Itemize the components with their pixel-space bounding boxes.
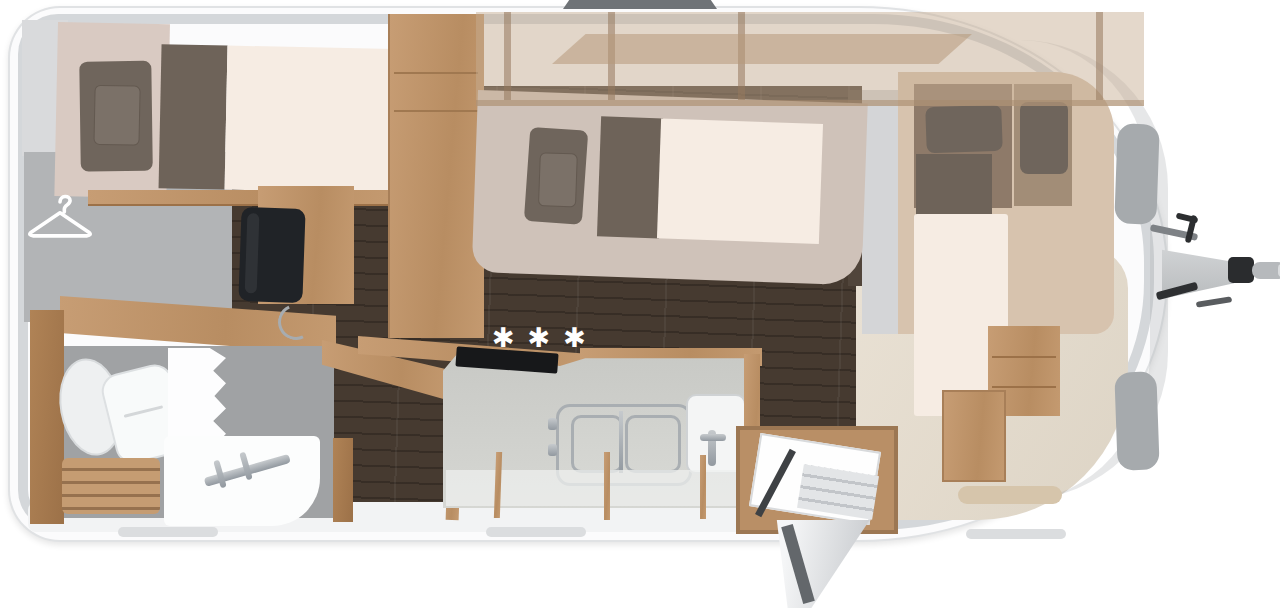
tall-cabinet-unit bbox=[388, 14, 484, 338]
kitchen-divider-d bbox=[700, 455, 706, 519]
rear-single-bed bbox=[54, 22, 394, 209]
tow-hitch bbox=[1150, 215, 1280, 315]
tv bbox=[238, 207, 305, 303]
entrance-door-leaf bbox=[766, 520, 874, 608]
washbasin-tap bbox=[205, 450, 305, 510]
hob-grate-tab1 bbox=[548, 418, 557, 430]
door-leaf-stripe bbox=[781, 524, 815, 604]
tv-highlight bbox=[245, 213, 260, 293]
kitchen-divider-c bbox=[604, 452, 610, 520]
front-bed-pillow1 bbox=[925, 105, 1003, 154]
bathroom-left-wall bbox=[30, 310, 64, 524]
hitch-rod-bottom2 bbox=[1196, 296, 1232, 308]
rear-bed-duvet bbox=[159, 44, 228, 189]
center-bed-mattress bbox=[657, 118, 823, 244]
kitchen-sink-spout bbox=[700, 434, 726, 441]
locker-inner-shelf bbox=[552, 34, 972, 64]
bathroom-slat-bench bbox=[62, 458, 160, 514]
roof-rail bbox=[563, 0, 717, 9]
center-bed-pillow-inner bbox=[538, 152, 578, 207]
locker-divider4 bbox=[1096, 12, 1103, 100]
drawer-groove1 bbox=[992, 356, 1056, 358]
hob-grate-right bbox=[625, 415, 681, 473]
front-window-lower bbox=[1114, 371, 1159, 470]
hob-grate-tab2 bbox=[548, 444, 557, 456]
overhead-lockers bbox=[476, 12, 1144, 106]
hob-grate-mid-bar bbox=[619, 411, 623, 473]
front-bed-pillow2 bbox=[1020, 102, 1068, 174]
hob-burner-symbols: ✱✱✱ bbox=[492, 322, 612, 358]
fridge-vent-grille bbox=[396, 132, 432, 198]
hanger-icon bbox=[24, 190, 96, 240]
drawer-groove2 bbox=[992, 386, 1056, 388]
hob-grate-left bbox=[571, 415, 623, 473]
center-bed-duvet bbox=[597, 116, 663, 238]
hitch-handbrake-h bbox=[1176, 212, 1199, 223]
front-bed-duvet bbox=[916, 154, 992, 220]
rear-bed-mattress bbox=[225, 46, 394, 193]
ground-shadow-right bbox=[966, 529, 1066, 539]
wood-wall-strip bbox=[333, 438, 353, 522]
tall-cabinet-shelf-line2 bbox=[394, 110, 478, 112]
hitch-tube bbox=[1252, 262, 1280, 279]
rear-bed-pillow-inner bbox=[93, 85, 140, 146]
ground-shadow-mid bbox=[486, 527, 586, 537]
tall-cabinet-shelf-line bbox=[394, 72, 478, 74]
entry-step-unit bbox=[942, 390, 1006, 482]
center-double-bed bbox=[472, 90, 868, 285]
ground-shadow-left bbox=[118, 527, 218, 537]
toilet-tank-seam bbox=[124, 405, 164, 418]
locker-divider1 bbox=[504, 12, 511, 100]
hitch-coupling bbox=[1228, 257, 1254, 283]
front-window-upper bbox=[1114, 123, 1159, 224]
caravan-floorplan: ✱✱✱ bbox=[0, 0, 1280, 608]
entry-mat bbox=[958, 486, 1062, 504]
